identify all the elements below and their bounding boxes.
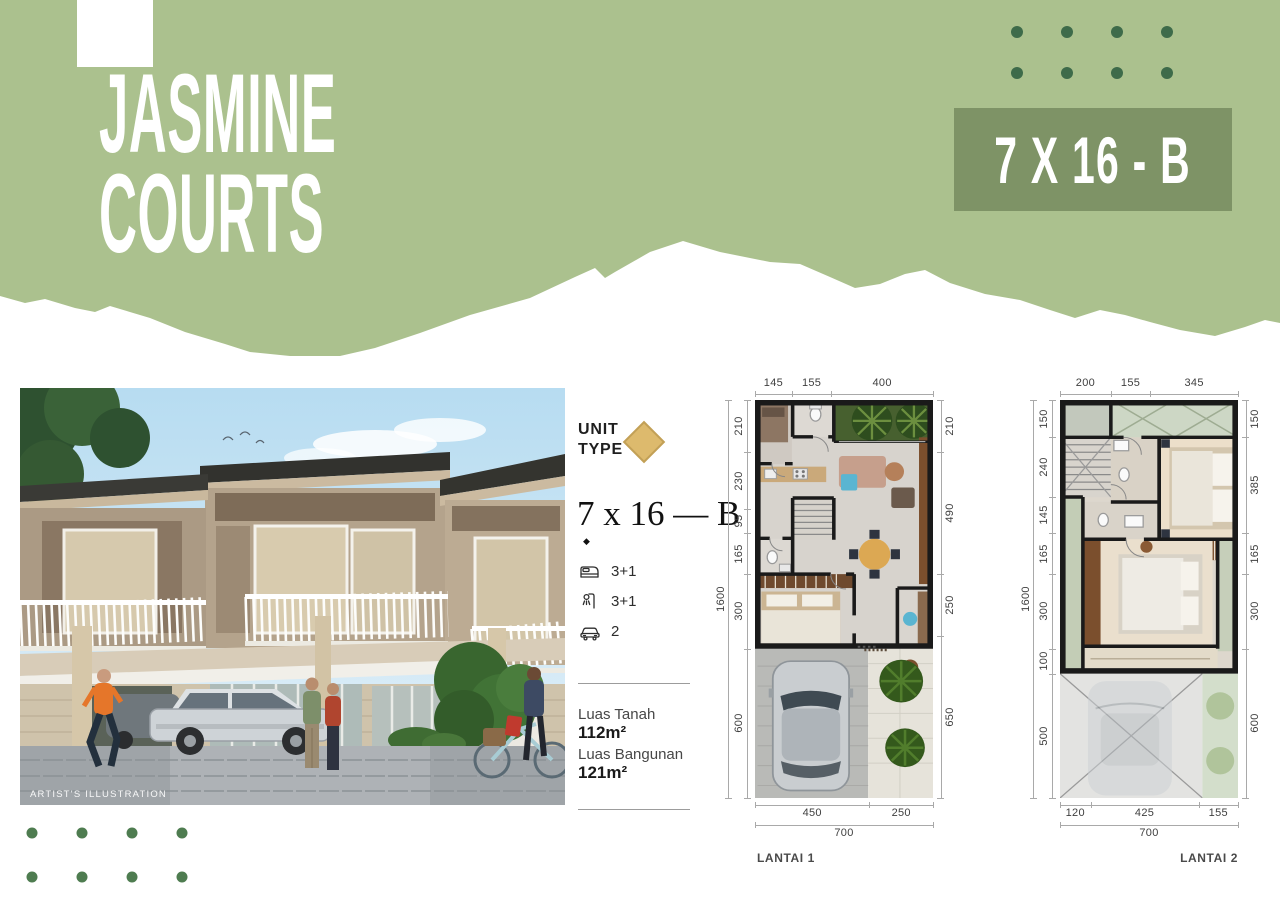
ruler-line [1049, 400, 1056, 401]
dim-label: 700 [834, 827, 853, 839]
dim-label: 250 [892, 807, 911, 819]
ruler-line [755, 825, 933, 826]
feature-list: 3+1 3+1 2 [578, 556, 636, 646]
floorplan-lantai-1-drawing [755, 400, 933, 798]
shower-icon [578, 591, 602, 611]
ruler-line [1111, 391, 1112, 397]
ruler-line [1049, 798, 1056, 799]
ruler-line [933, 822, 934, 828]
divider-bottom [578, 809, 690, 810]
ruler-line [1242, 574, 1249, 575]
ruler-line [1238, 822, 1239, 828]
ruler-line [937, 452, 944, 453]
dim-label: 650 [944, 708, 956, 727]
ruler-line [744, 649, 751, 650]
ruler-line [1060, 822, 1061, 828]
ruler-line [1060, 805, 1238, 806]
unit-type-badge-label: 7 X 16 - B [995, 122, 1192, 198]
ruler-line [1242, 437, 1249, 438]
dim-label: 120 [1066, 807, 1085, 819]
unit-type-label: UNIT TYPE [578, 420, 623, 460]
floorplan-label-2: LANTAI 2 [1180, 851, 1238, 865]
ruler-line [869, 802, 870, 808]
unit-type-badge: 7 X 16 - B [954, 108, 1232, 211]
brochure-page: JASMINE COURTS 7 X 16 - B [0, 0, 1280, 904]
ruler-line [1033, 400, 1034, 798]
bathroom-feature: 3+1 [578, 586, 636, 616]
dim-label: 345 [1184, 377, 1203, 389]
carport-count: 2 [611, 623, 619, 640]
header-dots [1004, 18, 1180, 88]
floorplan-lantai-2-drawing [1060, 400, 1238, 798]
ruler-line [755, 805, 933, 806]
artists-illustration-caption: ARTIST'S ILLUSTRATION [30, 789, 167, 800]
ruler-line [747, 400, 748, 798]
ruler-line [937, 636, 944, 637]
dim-label: 165 [1249, 544, 1261, 563]
dim-label: 300 [733, 602, 745, 621]
ruler-line [744, 574, 751, 575]
ruler-line [755, 822, 756, 828]
ruler-line [1199, 802, 1200, 808]
ruler-line [941, 400, 942, 798]
ruler-line [1049, 649, 1056, 650]
dim-label: 700 [1139, 827, 1158, 839]
ruler-line [937, 798, 944, 799]
ruler-line [831, 391, 832, 397]
ruler-line [1049, 497, 1056, 498]
ruler-line [792, 391, 793, 397]
building-area-value: 121m² [578, 763, 627, 783]
ruler-line [937, 574, 944, 575]
bed-icon [578, 561, 602, 581]
car-icon [578, 621, 602, 641]
brand-title-line2: COURTS [99, 164, 336, 264]
footer-dots [19, 820, 195, 892]
ruler-line [744, 798, 751, 799]
ruler-line [1060, 394, 1238, 395]
ruler-line [1030, 798, 1037, 799]
brand-title-line1: JASMINE [99, 64, 336, 164]
dim-label: 210 [733, 416, 745, 435]
car-topview [769, 661, 853, 790]
land-area-value: 112m² [578, 723, 626, 743]
dim-label: 600 [733, 714, 745, 733]
dim-label: 150 [1038, 409, 1050, 428]
house-photo-illustration: ARTIST'S ILLUSTRATION [20, 388, 565, 805]
unit-type-name: 7 x 16 — B [577, 494, 740, 534]
dim-label: 240 [1038, 458, 1050, 477]
ruler-line [1049, 533, 1056, 534]
ruler-line [1242, 400, 1249, 401]
bathroom-count: 3+1 [611, 593, 636, 610]
ruler-line [755, 391, 756, 397]
ruler-line [1060, 391, 1061, 397]
unit-type-diamond-icon [623, 421, 665, 463]
brand-title: JASMINE COURTS [99, 64, 336, 264]
ruler-line [1242, 798, 1249, 799]
floorplan-label-1: LANTAI 1 [757, 851, 815, 865]
dim-label: 145 [764, 377, 783, 389]
dim-label: 210 [944, 416, 956, 435]
ruler-line [1049, 437, 1056, 438]
dim-label: 145 [1038, 505, 1050, 524]
ruler-line [744, 452, 751, 453]
ruler-line [1246, 400, 1247, 798]
ruler-line [725, 400, 732, 401]
ruler-line [755, 802, 756, 808]
dim-label: 1600 [715, 586, 727, 612]
ruler-line [1049, 574, 1056, 575]
ruler-line [725, 798, 732, 799]
ruler-line [755, 394, 933, 395]
dim-label: 600 [1249, 714, 1261, 733]
dim-label: 450 [803, 807, 822, 819]
dim-label: 250 [944, 596, 956, 615]
dim-label: 155 [1209, 807, 1228, 819]
dim-label: 100 [1038, 652, 1050, 671]
ruler-line [1052, 400, 1053, 798]
ruler-line [744, 509, 751, 510]
ruler-line [744, 400, 751, 401]
dim-label: 1600 [1020, 586, 1032, 612]
ruler-line [744, 533, 751, 534]
car-under-roof [1088, 681, 1172, 795]
ruler-line [1030, 400, 1037, 401]
ruler-line [1242, 533, 1249, 534]
bedroom-count: 3+1 [611, 563, 636, 580]
dim-label: 385 [1249, 476, 1261, 495]
dim-label: 155 [802, 377, 821, 389]
dim-label: 165 [733, 544, 745, 563]
dim-label: 155 [1121, 377, 1140, 389]
ruler-line [1238, 391, 1239, 397]
ruler-line [1060, 802, 1061, 808]
divider-top [578, 683, 690, 684]
dim-label: 425 [1135, 807, 1154, 819]
ruler-line [1242, 649, 1249, 650]
dim-label: 500 [1038, 726, 1050, 745]
building-area-label: Luas Bangunan [578, 746, 683, 763]
ruler-line [933, 802, 934, 808]
carport-feature: 2 [578, 616, 636, 646]
ruler-line [933, 391, 934, 397]
dim-label: 230 [733, 471, 745, 490]
bullet-diamond-icon: ◆ [583, 536, 590, 547]
dim-label: 165 [1038, 544, 1050, 563]
dim-label: 300 [1038, 602, 1050, 621]
dim-label: 400 [873, 377, 892, 389]
ruler-line [1238, 802, 1239, 808]
dim-label: 150 [1249, 409, 1261, 428]
ruler-line [1049, 674, 1056, 675]
dim-label: 300 [1249, 602, 1261, 621]
ruler-line [728, 400, 729, 798]
bedroom-feature: 3+1 [578, 556, 636, 586]
ruler-line [1091, 802, 1092, 808]
dim-label: 200 [1076, 377, 1095, 389]
ruler-line [937, 400, 944, 401]
dim-label: 490 [944, 504, 956, 523]
ruler-line [1150, 391, 1151, 397]
land-area-label: Luas Tanah [578, 706, 655, 723]
ruler-line [1060, 825, 1238, 826]
